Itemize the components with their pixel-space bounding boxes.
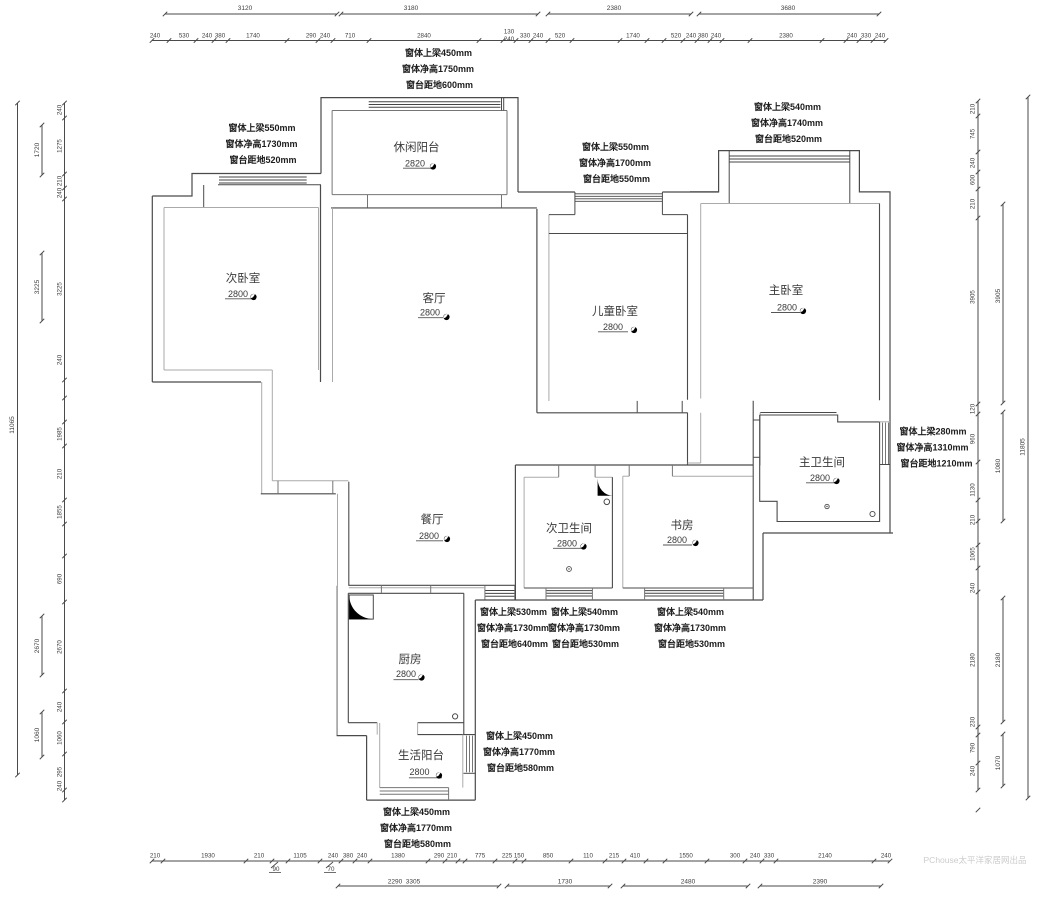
svg-text:主卫生间: 主卫生间 (799, 455, 845, 469)
svg-text:11065: 11065 (9, 416, 16, 434)
svg-text:生活阳台: 生活阳台 (398, 748, 444, 762)
svg-text:2380: 2380 (779, 33, 793, 40)
svg-text:530: 530 (179, 33, 190, 40)
svg-text:240: 240 (150, 33, 161, 40)
svg-text:厨房: 厨房 (399, 653, 422, 666)
svg-text:2800: 2800 (419, 531, 439, 541)
svg-text:3225: 3225 (34, 279, 41, 294)
svg-text:窗台距地600mm: 窗台距地600mm (406, 79, 473, 90)
svg-text:1380: 1380 (391, 853, 405, 860)
svg-text:240: 240 (57, 354, 64, 365)
svg-text:窗台距地520mm: 窗台距地520mm (230, 154, 297, 165)
svg-text:窗台距地640mm: 窗台距地640mm (481, 638, 548, 649)
svg-text:1060: 1060 (34, 727, 41, 742)
svg-text:窗台距地580mm: 窗台距地580mm (384, 838, 451, 849)
svg-text:2800: 2800 (420, 308, 440, 318)
svg-text:2800: 2800 (603, 322, 623, 332)
svg-text:240: 240 (711, 33, 722, 40)
svg-text:210: 210 (970, 198, 977, 209)
svg-text:215: 215 (609, 853, 620, 860)
svg-text:330: 330 (861, 33, 872, 40)
svg-text:520: 520 (671, 33, 682, 40)
svg-text:210: 210 (150, 853, 161, 860)
svg-text:窗体净高1770mm: 窗体净高1770mm (380, 822, 452, 833)
svg-text:2380: 2380 (607, 5, 622, 12)
svg-text:290: 290 (306, 33, 317, 40)
svg-text:3180: 3180 (404, 5, 419, 12)
svg-text:窗体上梁450mm: 窗体上梁450mm (486, 730, 553, 741)
svg-text:1070: 1070 (995, 755, 1002, 770)
svg-text:2390: 2390 (813, 879, 828, 886)
svg-text:3225: 3225 (57, 282, 64, 296)
svg-text:2840: 2840 (417, 33, 431, 40)
svg-text:窗体净高1730mm: 窗体净高1730mm (548, 622, 620, 633)
svg-text:2180: 2180 (995, 652, 1002, 667)
svg-text:240: 240 (533, 33, 544, 40)
svg-text:130: 130 (504, 29, 515, 36)
svg-text:110: 110 (583, 853, 593, 860)
svg-text:窗体上梁540mm: 窗体上梁540mm (657, 606, 724, 617)
svg-text:窗台距地530mm: 窗台距地530mm (658, 638, 725, 649)
svg-text:1855: 1855 (57, 505, 64, 519)
svg-text:2290 3305: 2290 3305 (388, 879, 421, 886)
svg-text:1985: 1985 (57, 427, 64, 441)
svg-text:1740: 1740 (626, 33, 640, 40)
svg-text:2670: 2670 (57, 640, 64, 654)
svg-text:210: 210 (970, 514, 977, 525)
svg-text:240: 240 (328, 853, 339, 860)
svg-text:240: 240 (750, 853, 761, 860)
svg-text:餐厅: 餐厅 (421, 512, 444, 526)
svg-text:2800: 2800 (557, 539, 577, 549)
svg-text:240: 240 (504, 36, 515, 43)
svg-text:745: 745 (970, 128, 977, 139)
svg-text:窗体净高1750mm: 窗体净高1750mm (402, 63, 474, 74)
svg-text:2800: 2800 (396, 669, 416, 679)
svg-text:380: 380 (343, 853, 354, 860)
svg-text:295: 295 (57, 766, 64, 777)
svg-text:240: 240 (970, 765, 977, 776)
svg-text:210: 210 (254, 853, 265, 860)
svg-text:850: 850 (543, 853, 554, 860)
svg-text:1550: 1550 (679, 853, 693, 860)
svg-text:窗体净高1730mm: 窗体净高1730mm (654, 622, 726, 633)
svg-text:775: 775 (475, 853, 486, 860)
svg-text:2800: 2800 (409, 767, 429, 777)
svg-text:240: 240 (970, 157, 977, 168)
svg-text:窗体上梁530mm: 窗体上梁530mm (480, 606, 547, 617)
svg-text:90: 90 (273, 866, 280, 873)
svg-text:1130: 1130 (970, 483, 977, 497)
svg-text:2800: 2800 (228, 289, 248, 299)
svg-text:600: 600 (970, 174, 977, 185)
svg-text:120: 120 (970, 403, 977, 414)
svg-text:窗体上梁550mm: 窗体上梁550mm (582, 141, 649, 152)
svg-text:790: 790 (970, 742, 977, 753)
svg-text:窗体净高1700mm: 窗体净高1700mm (579, 157, 651, 168)
svg-text:窗台距地530mm: 窗台距地530mm (552, 638, 619, 649)
svg-text:290: 290 (434, 853, 445, 860)
svg-text:380: 380 (698, 33, 709, 40)
svg-text:11805: 11805 (1020, 438, 1027, 456)
svg-text:窗体上梁450mm: 窗体上梁450mm (405, 47, 472, 58)
svg-text:1080: 1080 (995, 458, 1002, 473)
svg-text:窗体上梁450mm: 窗体上梁450mm (383, 806, 450, 817)
svg-text:240: 240 (202, 33, 213, 40)
svg-text:240: 240 (57, 780, 64, 791)
svg-text:3905: 3905 (970, 290, 977, 304)
svg-text:窗台距地580mm: 窗台距地580mm (487, 762, 554, 773)
svg-text:主卧室: 主卧室 (769, 283, 804, 297)
svg-text:窗体净高1730mm: 窗体净高1730mm (226, 138, 298, 149)
svg-text:330: 330 (520, 33, 531, 40)
svg-text:3680: 3680 (781, 5, 796, 12)
svg-text:710: 710 (345, 33, 356, 40)
svg-text:410: 410 (630, 853, 641, 860)
svg-text:3120: 3120 (238, 5, 253, 12)
svg-text:窗台距地520mm: 窗台距地520mm (755, 133, 822, 144)
svg-text:150: 150 (514, 853, 525, 860)
svg-text:330: 330 (764, 853, 775, 860)
svg-text:240: 240 (57, 104, 64, 115)
svg-text:1730: 1730 (558, 879, 573, 886)
svg-text:300: 300 (730, 853, 741, 860)
svg-text:窗体净高1310mm: 窗体净高1310mm (897, 442, 969, 453)
svg-text:休闲阳台: 休闲阳台 (394, 140, 440, 154)
svg-text:1105: 1105 (293, 853, 307, 860)
svg-text:窗台距地550mm: 窗台距地550mm (583, 173, 650, 184)
svg-text:380: 380 (215, 33, 226, 40)
svg-text:210: 210 (970, 103, 977, 114)
svg-text:窗体上梁280mm: 窗体上梁280mm (900, 426, 967, 437)
svg-text:225: 225 (502, 853, 513, 860)
svg-text:520: 520 (555, 33, 566, 40)
svg-text:2800: 2800 (667, 535, 687, 545)
svg-text:240: 240 (847, 33, 858, 40)
svg-text:1720: 1720 (34, 142, 41, 157)
svg-text:窗体净高1770mm: 窗体净高1770mm (483, 746, 555, 757)
svg-text:2820: 2820 (405, 159, 425, 169)
svg-text:窗体上梁540mm: 窗体上梁540mm (551, 606, 618, 617)
svg-text:书房: 书房 (671, 519, 694, 532)
svg-text:690: 690 (57, 573, 64, 584)
svg-text:窗体净高1740mm: 窗体净高1740mm (751, 117, 823, 128)
svg-text:次卧室: 次卧室 (226, 271, 261, 285)
svg-text:240: 240 (881, 853, 892, 860)
svg-text:2480: 2480 (681, 879, 696, 886)
svg-text:2800: 2800 (810, 473, 830, 483)
svg-text:2180: 2180 (970, 653, 977, 667)
svg-text:210: 210 (447, 853, 458, 860)
svg-text:240: 240 (57, 701, 64, 712)
svg-text:2800: 2800 (777, 303, 797, 313)
svg-text:3905: 3905 (995, 288, 1002, 303)
svg-text:1060: 1060 (57, 731, 64, 745)
svg-text:70: 70 (328, 866, 335, 873)
svg-text:客厅: 客厅 (423, 291, 446, 305)
svg-text:2140: 2140 (818, 853, 832, 860)
svg-text:2670: 2670 (34, 638, 41, 653)
svg-text:210: 210 (57, 175, 64, 186)
svg-text:窗体上梁550mm: 窗体上梁550mm (229, 122, 296, 133)
svg-text:960: 960 (970, 433, 977, 444)
svg-text:窗体净高1730mm: 窗体净高1730mm (477, 622, 549, 633)
svg-text:PChouse太平洋家居网出品: PChouse太平洋家居网出品 (924, 855, 1027, 865)
svg-text:210: 210 (57, 468, 64, 479)
svg-text:240: 240 (320, 33, 331, 40)
svg-text:1065: 1065 (970, 547, 977, 561)
svg-text:240: 240 (357, 853, 368, 860)
svg-text:儿童卧室: 儿童卧室 (592, 304, 638, 318)
svg-text:次卫生间: 次卫生间 (546, 521, 592, 535)
svg-text:1275: 1275 (57, 139, 64, 153)
svg-text:1740: 1740 (246, 33, 260, 40)
svg-text:1930: 1930 (201, 853, 215, 860)
svg-text:240: 240 (57, 187, 64, 198)
svg-text:240: 240 (970, 582, 977, 593)
svg-text:240: 240 (875, 33, 886, 40)
svg-text:230: 230 (970, 716, 977, 727)
svg-text:窗体上梁540mm: 窗体上梁540mm (754, 101, 821, 112)
svg-text:窗台距地1210mm: 窗台距地1210mm (901, 458, 973, 469)
svg-text:240: 240 (686, 33, 697, 40)
